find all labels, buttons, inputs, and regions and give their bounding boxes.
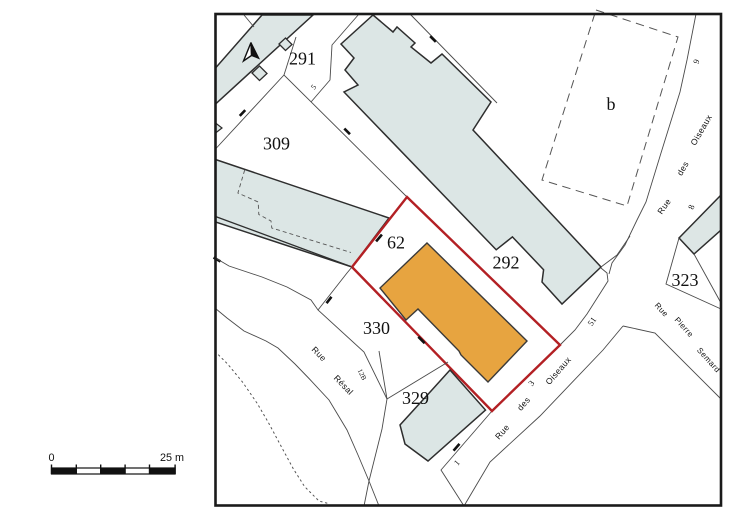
svg-text:25 m: 25 m bbox=[160, 452, 184, 464]
svg-text:0: 0 bbox=[49, 452, 55, 464]
svg-text:62: 62 bbox=[387, 233, 405, 253]
svg-text:292: 292 bbox=[493, 253, 520, 273]
svg-text:b: b bbox=[607, 94, 616, 114]
svg-text:291: 291 bbox=[289, 49, 316, 69]
svg-text:329: 329 bbox=[402, 388, 429, 408]
svg-text:309: 309 bbox=[263, 134, 290, 154]
svg-text:323: 323 bbox=[672, 270, 699, 290]
svg-text:330: 330 bbox=[363, 318, 390, 338]
